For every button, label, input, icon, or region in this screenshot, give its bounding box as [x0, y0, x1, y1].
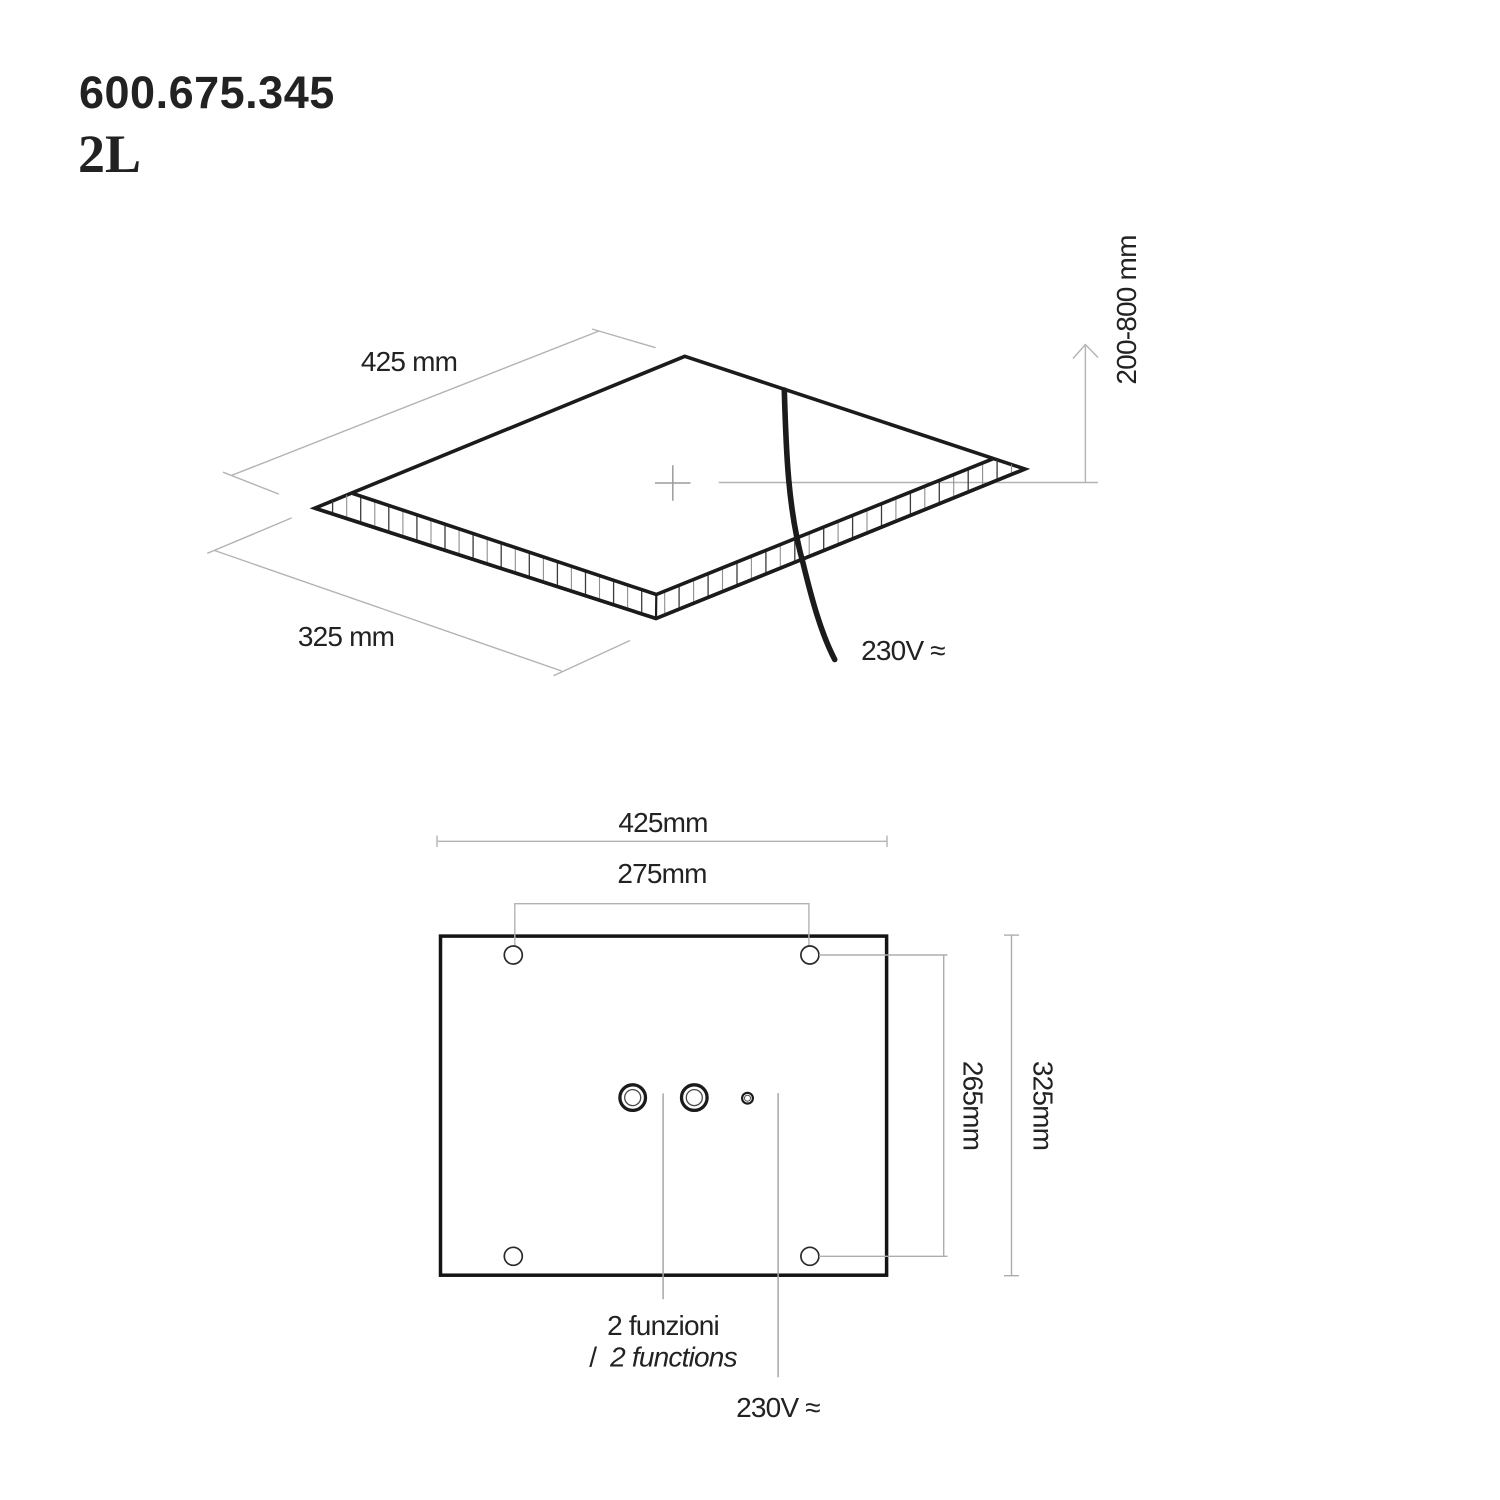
- svg-text:325 mm: 325 mm: [298, 621, 394, 652]
- svg-text:600.675.345: 600.675.345: [79, 67, 335, 118]
- svg-text:325mm: 325mm: [1028, 1061, 1059, 1150]
- svg-text:230V ≈: 230V ≈: [736, 1392, 820, 1423]
- svg-text:265mm: 265mm: [958, 1061, 989, 1150]
- svg-text:425mm: 425mm: [618, 807, 707, 838]
- svg-text:/ 2 functions: / 2 functions: [589, 1342, 737, 1373]
- svg-text:2 funzioni: 2 funzioni: [607, 1310, 719, 1341]
- svg-text:425 mm: 425 mm: [361, 346, 457, 377]
- svg-text:200-800 mm: 200-800 mm: [1111, 235, 1142, 384]
- svg-text:275mm: 275mm: [617, 858, 706, 889]
- svg-text:2L: 2L: [78, 124, 141, 184]
- svg-text:230V ≈: 230V ≈: [861, 635, 945, 666]
